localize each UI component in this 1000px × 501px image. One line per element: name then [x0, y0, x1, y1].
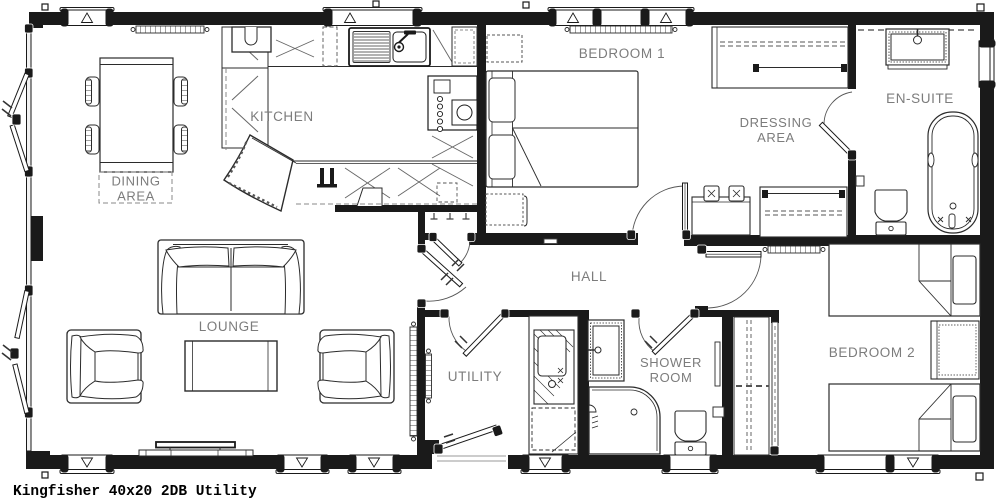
- svg-text:SHOWER: SHOWER: [640, 355, 702, 370]
- svg-text:ROOM: ROOM: [650, 370, 693, 385]
- svg-text:BEDROOM 2: BEDROOM 2: [829, 345, 915, 360]
- svg-text:KITCHEN: KITCHEN: [250, 109, 313, 124]
- svg-text:UTILITY: UTILITY: [448, 369, 502, 384]
- svg-text:EN-SUITE: EN-SUITE: [886, 91, 954, 106]
- svg-text:DRESSING: DRESSING: [740, 115, 813, 130]
- svg-text:HALL: HALL: [571, 269, 607, 284]
- svg-text:DINING: DINING: [111, 174, 160, 189]
- svg-text:BEDROOM 1: BEDROOM 1: [579, 46, 665, 61]
- svg-text:AREA: AREA: [117, 189, 155, 204]
- svg-text:Kingfisher 40x20 2DB Utility: Kingfisher 40x20 2DB Utility: [13, 484, 257, 500]
- svg-text:AREA: AREA: [757, 130, 795, 145]
- svg-text:LOUNGE: LOUNGE: [199, 319, 260, 334]
